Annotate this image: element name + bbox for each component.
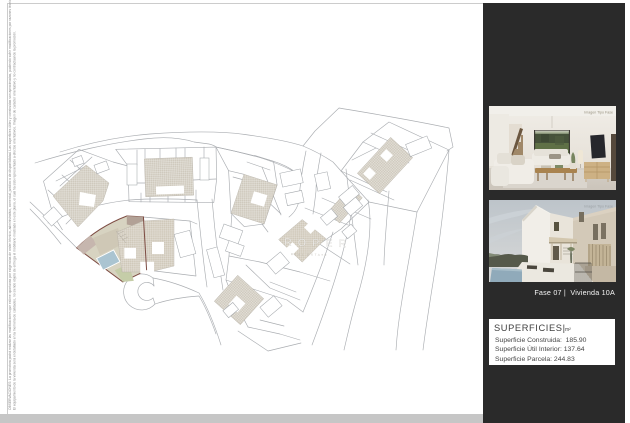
svg-text:Imagen Tipo Fase: Imagen Tipo Fase <box>584 205 613 209</box>
svg-text:Imagen Tipo Fase: Imagen Tipo Fase <box>584 111 613 115</box>
svg-text:ROPER: ROPER <box>284 236 353 250</box>
